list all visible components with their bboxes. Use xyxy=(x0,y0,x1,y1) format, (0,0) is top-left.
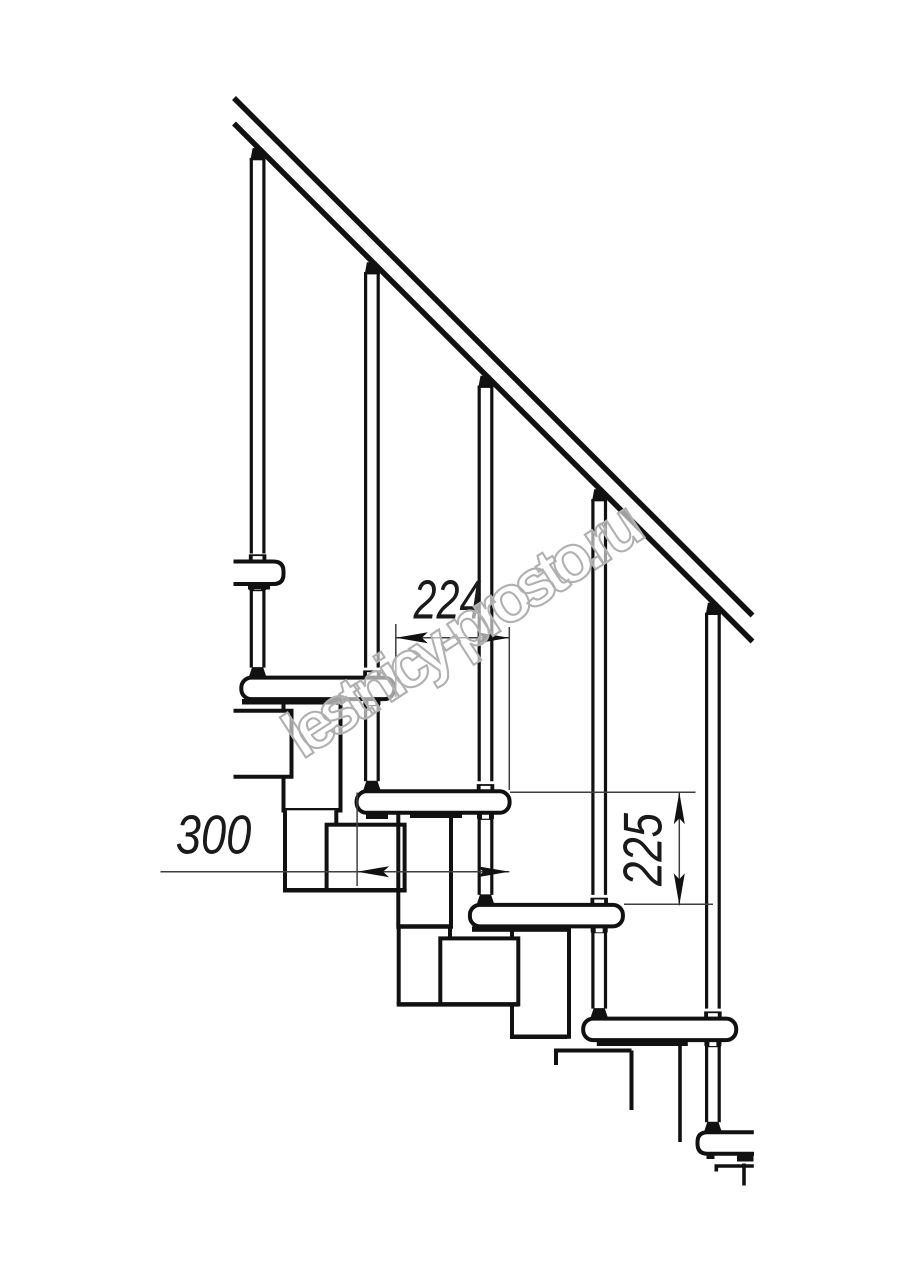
svg-text:300: 300 xyxy=(176,804,252,866)
svg-text:225: 225 xyxy=(612,813,674,887)
